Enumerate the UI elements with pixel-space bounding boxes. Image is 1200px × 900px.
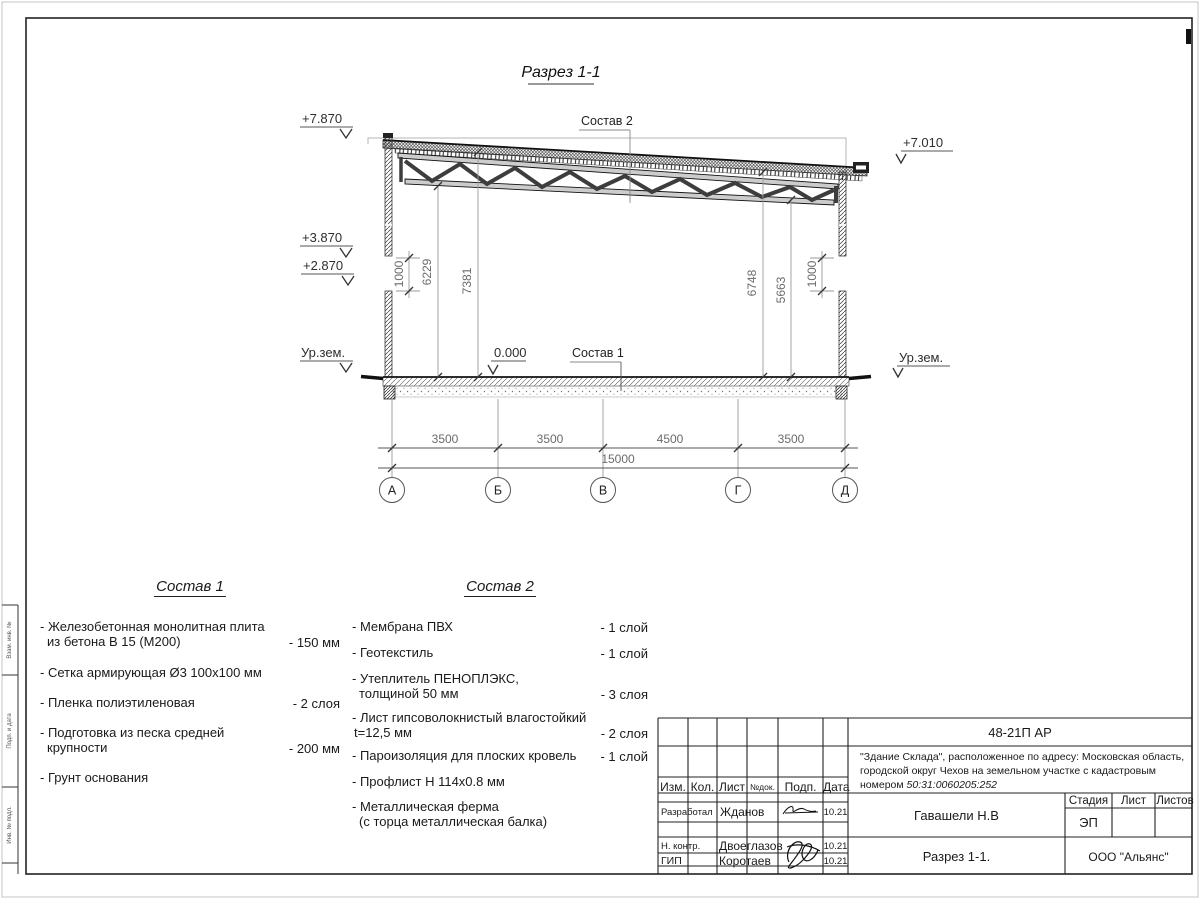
- vdim-6748: 6748: [745, 269, 759, 296]
- list-item: - Металлическая ферма(с торца металличес…: [352, 800, 648, 830]
- col-header-data: Дата: [823, 780, 848, 794]
- axis-bubbles: А Б В Г Д: [380, 478, 858, 503]
- stage-label: Стадия: [1065, 795, 1112, 807]
- ground-level-right: Ур.зем.: [899, 350, 943, 365]
- vdim-5663: 5663: [774, 276, 788, 303]
- axis-label-b: Б: [494, 484, 502, 498]
- col-header-podp: Подп.: [778, 780, 823, 794]
- vdim-left-opening: 1000: [392, 260, 406, 287]
- row-name-gip: Коротаев: [719, 854, 771, 868]
- vdim-right-opening: 1000: [805, 260, 819, 287]
- right-wall-upper: [839, 172, 846, 256]
- row-name-developer: Жданов: [720, 805, 764, 819]
- drawing-sheet: Взам. инв. № Подп. и дата Инв. № подл. Р…: [0, 0, 1200, 900]
- col-header-ndok: №док.: [747, 782, 778, 792]
- row-date-gip: 10.21: [823, 856, 848, 867]
- ground-level-left: Ур.зем.: [301, 345, 345, 360]
- frame-stamp-2: Подп. и дата: [7, 713, 13, 749]
- list-item: - Грунт основания: [40, 771, 340, 786]
- company-name: ООО "Альянс": [1065, 850, 1192, 864]
- project-description-line3: номером 50:31:0060205:252: [860, 778, 1190, 793]
- fold-mark: [1186, 29, 1191, 44]
- axis-label-a: А: [388, 484, 397, 498]
- col-header-kol: Кол.: [688, 780, 717, 794]
- list-item: - Утеплитель ПЕНОПЛЭКС,толщиной 50 мм - …: [352, 672, 648, 702]
- row-role-gip: ГИП: [661, 855, 682, 867]
- row-name-ncontr: Двоеглазов: [719, 839, 783, 853]
- sostav1-ref-label: Состав 1: [572, 346, 624, 360]
- row-date-developer: 10.21: [823, 807, 848, 818]
- sostav2-list: Состав 2 - Мембрана ПВХ - 1 слой - Геоте…: [352, 578, 648, 838]
- horizontal-dimensions: 3500 3500 4500 3500 15000: [378, 399, 858, 477]
- axis-label-v: В: [599, 484, 607, 498]
- level-zero: 0.000: [494, 345, 527, 360]
- right-wall-lower: [839, 291, 846, 377]
- ground-mark-right: [849, 377, 871, 379]
- hdim-span-4: 3500: [778, 432, 805, 446]
- approver-name: Гавашели Н.В: [848, 808, 1065, 823]
- list-item: - Сетка армирующая Ø3 100х100 мм: [40, 666, 340, 681]
- row-role-ncontr: Н. контр.: [661, 841, 700, 852]
- list-item: - Профлист Н 114х0.8 мм: [352, 775, 648, 790]
- level-2870: +2.870: [303, 258, 343, 273]
- frame-stamp-1: Взам. инв. №: [6, 621, 13, 658]
- level-7010: +7.010: [903, 135, 943, 150]
- project-description-line1: "Здание Склада", расположенное по адресу…: [860, 750, 1190, 765]
- row-role-developer: Разработал: [661, 807, 713, 818]
- left-wall-upper: [385, 137, 392, 256]
- list-item: - Пароизоляция для плоских кровель - 1 с…: [352, 749, 648, 764]
- sostav2-title: Состав 2: [352, 578, 648, 595]
- col-header-list: Лист: [717, 780, 747, 794]
- right-footing: [836, 386, 847, 399]
- sostav2-ref-label: Состав 2: [581, 114, 633, 128]
- sheets-label: Листов: [1155, 795, 1195, 807]
- left-footing: [384, 386, 395, 399]
- frame-stamp-3: Инв. № подл.: [6, 806, 13, 844]
- hdim-span-3: 4500: [657, 432, 684, 446]
- section-title: Разрез 1-1: [521, 64, 600, 81]
- floor-slab: [383, 377, 849, 386]
- stage-value: ЭП: [1065, 815, 1112, 830]
- project-code: 48-21П АР: [848, 725, 1192, 740]
- left-wall-lower: [385, 291, 392, 377]
- list-item: - Подготовка из песка среднейкрупности -…: [40, 726, 340, 756]
- level-7870: +7.870: [302, 111, 342, 126]
- hdim-total: 15000: [601, 452, 635, 466]
- project-description-line2: городской округ Чехов на земельном участ…: [860, 764, 1190, 779]
- axis-label-d: Д: [841, 484, 850, 498]
- list-item: - Лист гипсоволокнистый влагостойкийt=12…: [352, 711, 648, 741]
- row-date-ncontr: 10.21: [823, 841, 848, 852]
- vdim-6229: 6229: [420, 258, 434, 285]
- sand-layer: [393, 386, 841, 397]
- cadastral-number: 50:31:0060205:252: [907, 779, 998, 791]
- level-3870: +3.870: [302, 230, 342, 245]
- vdim-7381: 7381: [460, 267, 474, 294]
- hdim-span-2: 3500: [537, 432, 564, 446]
- sostav1-list: Состав 1 - Железобетонная монолитная пли…: [40, 578, 340, 793]
- list-item: - Железобетонная монолитная плитаиз бето…: [40, 620, 340, 650]
- axis-label-g: Г: [735, 484, 742, 498]
- col-header-izm: Изм.: [658, 780, 688, 794]
- list-item: - Геотекстиль - 1 слой: [352, 646, 648, 661]
- list-item: - Мембрана ПВХ - 1 слой: [352, 620, 648, 635]
- floor: [361, 377, 871, 400]
- sheet-label: Лист: [1112, 795, 1155, 807]
- sostav1-title: Состав 1: [40, 578, 340, 595]
- document-name: Разрез 1-1.: [848, 849, 1065, 864]
- ground-mark-left: [361, 377, 383, 379]
- list-item: - Пленка полиэтиленовая - 2 слоя: [40, 696, 340, 711]
- hdim-span-1: 3500: [432, 432, 459, 446]
